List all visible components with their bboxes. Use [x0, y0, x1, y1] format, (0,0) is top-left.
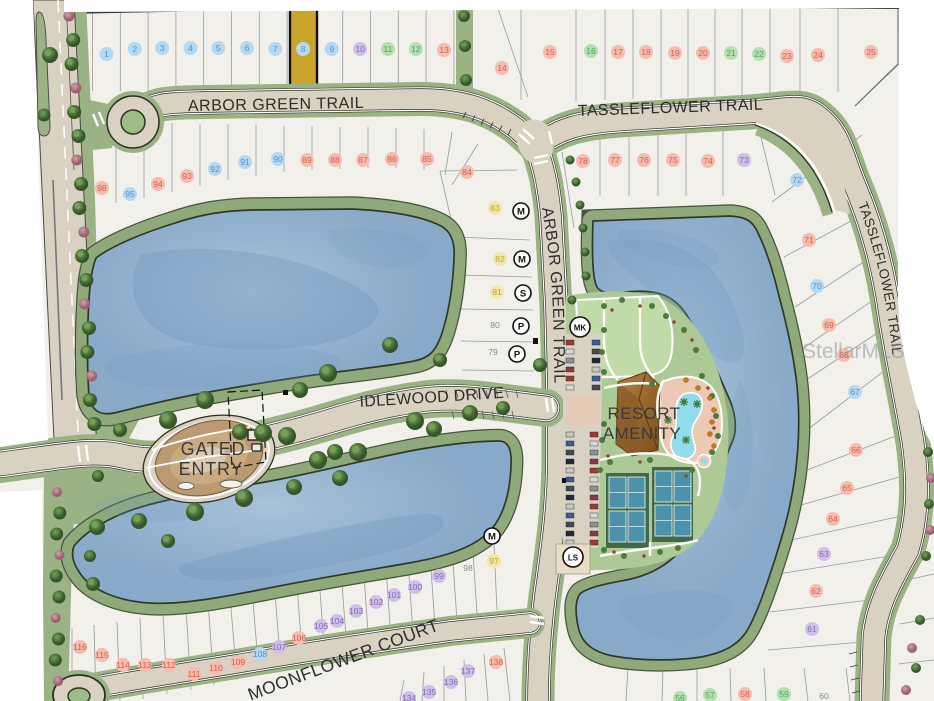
svg-text:S: S — [520, 288, 526, 299]
svg-text:63: 63 — [819, 549, 829, 559]
svg-text:138: 138 — [489, 657, 504, 667]
svg-text:110: 110 — [209, 663, 223, 673]
svg-text:83: 83 — [490, 203, 500, 213]
svg-text:25: 25 — [866, 47, 876, 57]
svg-text:16: 16 — [586, 46, 596, 56]
svg-text:62: 62 — [811, 586, 821, 596]
svg-text:93: 93 — [182, 171, 192, 181]
svg-text:6: 6 — [245, 43, 250, 53]
svg-text:72: 72 — [792, 175, 802, 185]
svg-text:66: 66 — [851, 445, 861, 455]
svg-text:109: 109 — [231, 657, 246, 667]
svg-text:69: 69 — [824, 320, 834, 330]
svg-text:StellarMLS: StellarMLS — [802, 340, 905, 363]
svg-text:2: 2 — [132, 44, 137, 54]
svg-text:ENTRY: ENTRY — [179, 459, 244, 479]
svg-text:90: 90 — [273, 154, 283, 164]
svg-text:M: M — [518, 254, 526, 265]
svg-text:91: 91 — [240, 157, 250, 167]
svg-text:84: 84 — [462, 167, 472, 177]
svg-text:108: 108 — [253, 649, 268, 659]
svg-text:AMENITY: AMENITY — [603, 424, 681, 443]
svg-text:67: 67 — [850, 387, 860, 397]
svg-text:85: 85 — [422, 154, 432, 164]
svg-text:MK: MK — [574, 323, 587, 332]
svg-text:82: 82 — [495, 254, 505, 264]
svg-text:18: 18 — [641, 47, 651, 57]
svg-text:73: 73 — [739, 155, 749, 165]
svg-text:114: 114 — [116, 660, 130, 670]
svg-text:136: 136 — [444, 677, 459, 687]
svg-text:100: 100 — [408, 582, 423, 592]
svg-text:64: 64 — [828, 514, 838, 524]
svg-text:17: 17 — [613, 47, 623, 57]
svg-text:60: 60 — [819, 691, 829, 701]
svg-text:61: 61 — [807, 624, 817, 634]
svg-text:137: 137 — [461, 666, 476, 676]
svg-text:89: 89 — [302, 155, 312, 165]
svg-text:116: 116 — [73, 642, 87, 652]
svg-text:79: 79 — [488, 347, 498, 357]
svg-text:21: 21 — [726, 48, 736, 58]
svg-text:113: 113 — [138, 660, 152, 670]
svg-text:11: 11 — [383, 44, 392, 54]
svg-text:102: 102 — [369, 597, 384, 607]
svg-text:M: M — [488, 531, 496, 542]
svg-text:112: 112 — [162, 660, 176, 670]
svg-text:74: 74 — [703, 156, 713, 166]
svg-text:115: 115 — [95, 650, 109, 660]
svg-text:14: 14 — [497, 63, 507, 73]
svg-text:111: 111 — [187, 669, 200, 679]
svg-text:3: 3 — [160, 43, 165, 53]
svg-text:87: 87 — [358, 155, 368, 165]
svg-text:4: 4 — [188, 43, 193, 53]
svg-text:70: 70 — [812, 281, 822, 291]
svg-text:10: 10 — [355, 44, 365, 54]
svg-text:78: 78 — [578, 156, 588, 166]
svg-text:71: 71 — [804, 235, 814, 245]
svg-text:23: 23 — [782, 51, 792, 61]
svg-text:59: 59 — [779, 689, 789, 699]
svg-text:98: 98 — [97, 183, 107, 193]
svg-text:134: 134 — [402, 693, 417, 701]
svg-text:12: 12 — [411, 44, 421, 54]
svg-text:1: 1 — [104, 49, 109, 59]
svg-text:77: 77 — [610, 155, 620, 165]
svg-text:P: P — [514, 349, 521, 360]
svg-text:ARBOR GREEN TRAIL: ARBOR GREEN TRAIL — [188, 95, 365, 115]
svg-text:75: 75 — [668, 155, 678, 165]
svg-text:94: 94 — [153, 179, 163, 189]
svg-text:86: 86 — [387, 154, 397, 164]
svg-text:65: 65 — [842, 483, 852, 493]
svg-text:24: 24 — [813, 50, 823, 60]
svg-text:15: 15 — [545, 47, 555, 57]
svg-text:88: 88 — [330, 155, 340, 165]
svg-text:5: 5 — [216, 43, 221, 53]
svg-text:103: 103 — [349, 606, 364, 616]
svg-text:106: 106 — [292, 633, 307, 643]
svg-text:7: 7 — [273, 44, 278, 54]
svg-text:8: 8 — [301, 44, 306, 54]
svg-text:GATED: GATED — [181, 439, 246, 459]
svg-text:P: P — [518, 321, 525, 332]
svg-text:LS: LS — [568, 553, 579, 562]
svg-text:56: 56 — [675, 693, 685, 701]
svg-text:99: 99 — [434, 571, 444, 581]
svg-text:RESORT: RESORT — [608, 404, 681, 423]
svg-text:M: M — [517, 206, 525, 217]
svg-text:20: 20 — [698, 48, 708, 58]
svg-text:101: 101 — [387, 590, 402, 600]
svg-text:105: 105 — [314, 621, 329, 631]
svg-text:13: 13 — [439, 45, 449, 55]
svg-text:92: 92 — [210, 164, 220, 174]
svg-text:19: 19 — [670, 48, 680, 58]
svg-text:97: 97 — [489, 556, 499, 566]
svg-text:22: 22 — [754, 49, 764, 59]
svg-text:95: 95 — [125, 189, 135, 199]
svg-text:104: 104 — [330, 616, 345, 626]
svg-text:81: 81 — [492, 287, 502, 297]
svg-text:58: 58 — [740, 689, 750, 699]
svg-text:76: 76 — [639, 155, 649, 165]
svg-text:135: 135 — [422, 687, 437, 697]
svg-text:107: 107 — [272, 642, 287, 652]
svg-text:98: 98 — [463, 563, 473, 573]
svg-text:80: 80 — [490, 320, 500, 330]
svg-text:57: 57 — [705, 690, 715, 700]
svg-text:9: 9 — [329, 44, 334, 54]
